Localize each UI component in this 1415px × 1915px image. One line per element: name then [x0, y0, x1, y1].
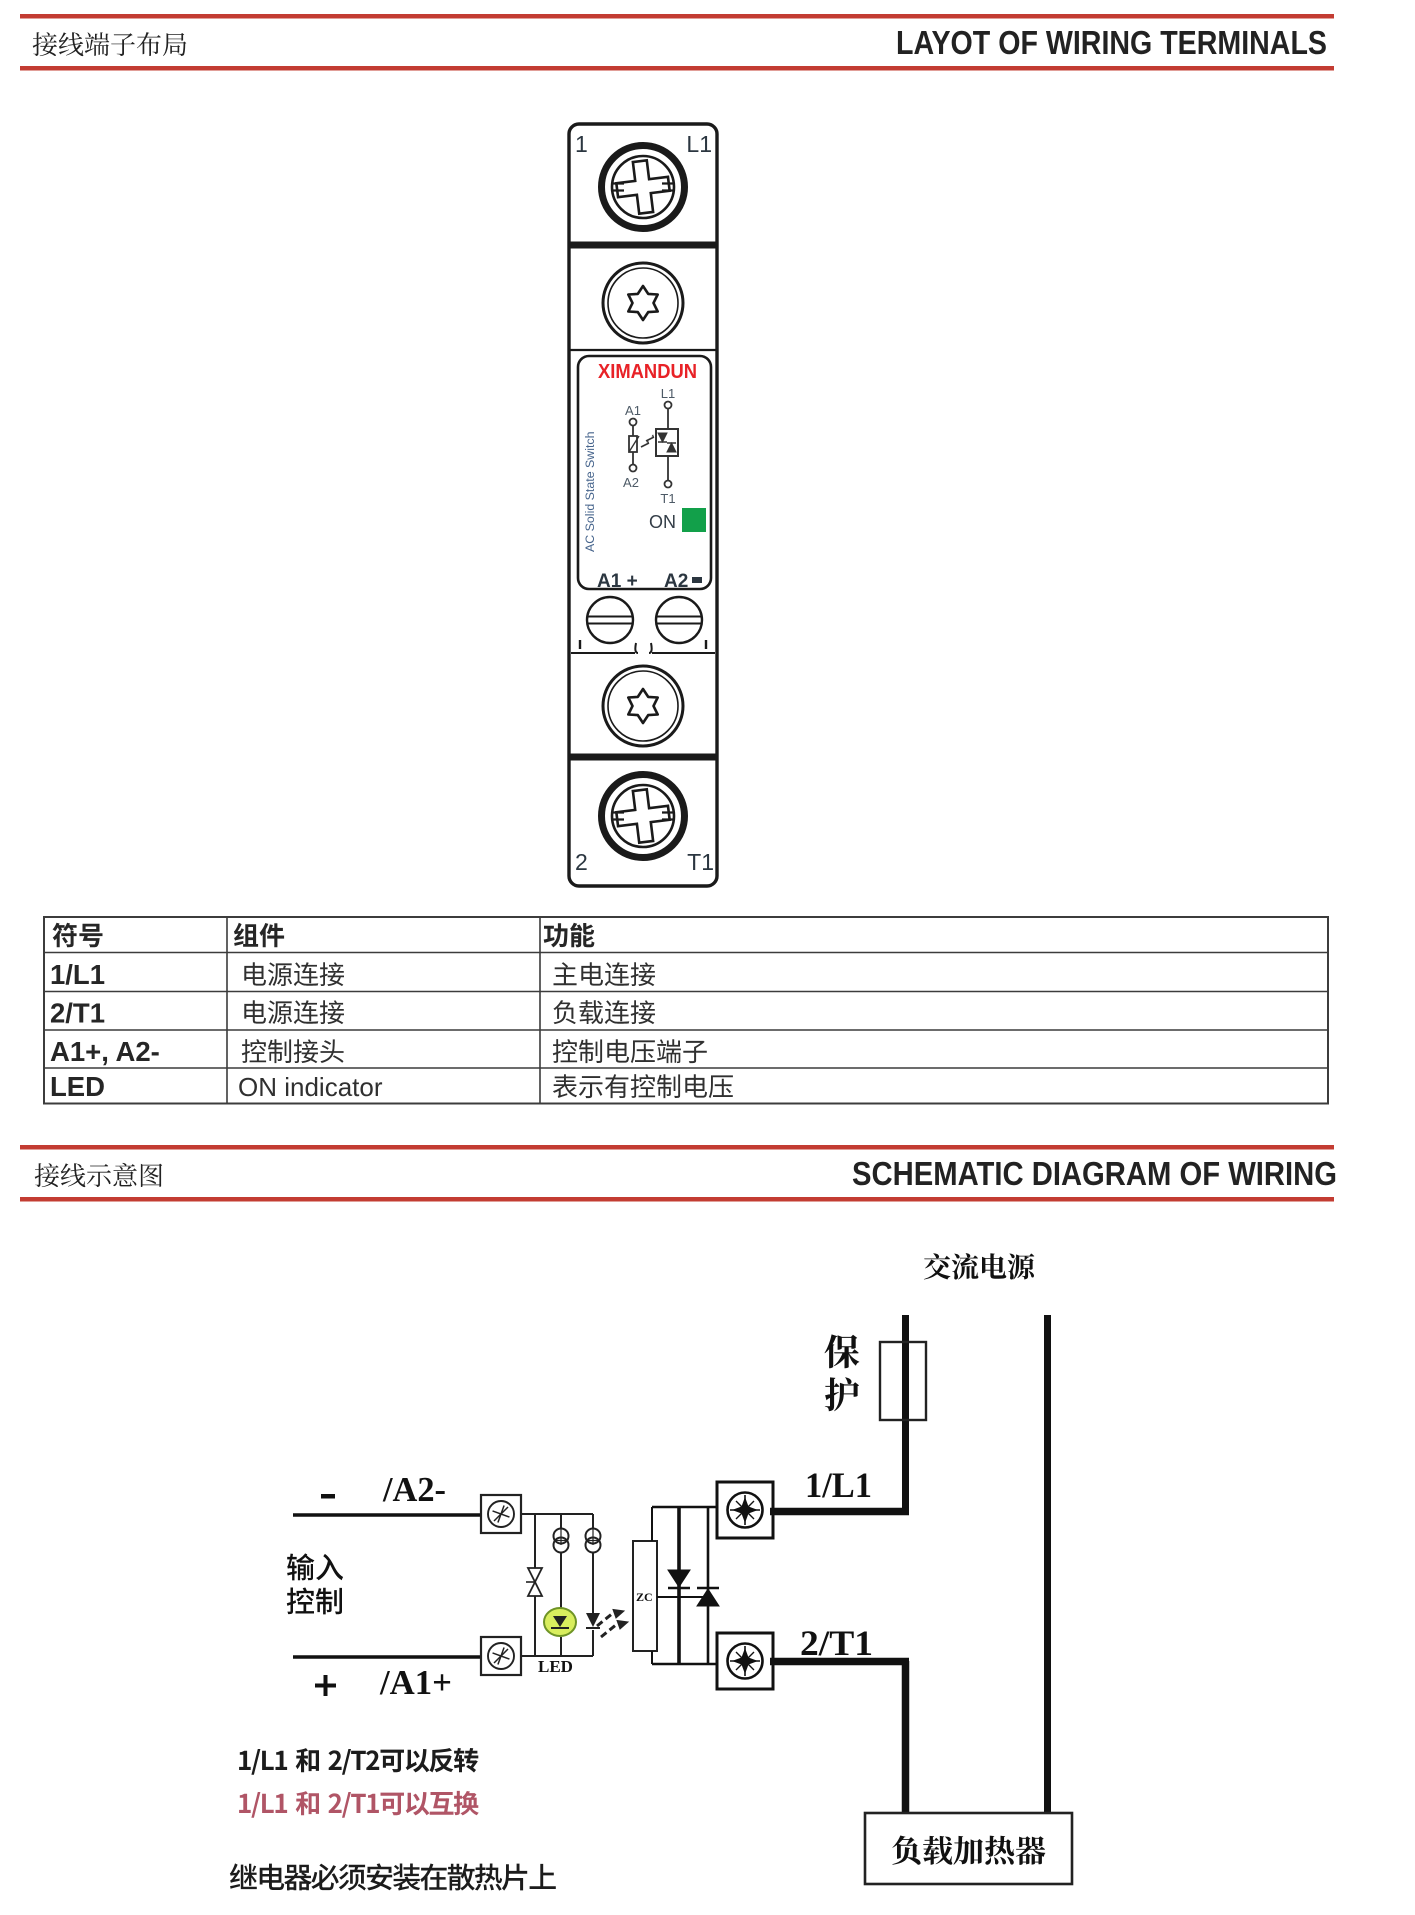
- svg-text:A1 +: A1 +: [597, 571, 638, 592]
- svg-text:A2: A2: [664, 571, 688, 592]
- svg-text:2/T1: 2/T1: [50, 998, 105, 1029]
- svg-text:ZC: ZC: [636, 1590, 653, 1604]
- svg-text:1: 1: [575, 131, 588, 157]
- svg-text:1/L1: 1/L1: [805, 1465, 872, 1505]
- svg-text:LED: LED: [50, 1071, 105, 1102]
- svg-text:2/T1: 2/T1: [800, 1623, 873, 1663]
- svg-text:/A2-: /A2-: [382, 1470, 446, 1509]
- svg-text:2: 2: [575, 849, 588, 875]
- svg-text:T1: T1: [687, 849, 714, 875]
- svg-text:1/L1: 1/L1: [50, 959, 105, 990]
- svg-text:L1: L1: [661, 386, 675, 401]
- svg-text:ON: ON: [649, 512, 676, 532]
- svg-text:SCHEMATIC DIAGRAM OF WIRING: SCHEMATIC DIAGRAM OF WIRING: [852, 1155, 1337, 1192]
- svg-text:T1: T1: [660, 491, 675, 506]
- svg-text:A1: A1: [625, 403, 641, 418]
- svg-text:A2: A2: [623, 475, 639, 490]
- svg-text:AC Solid State Switch: AC Solid State Switch: [583, 431, 597, 552]
- svg-text:LAYOT OF WIRING TERMINALS: LAYOT OF WIRING TERMINALS: [896, 24, 1327, 61]
- svg-text:L1: L1: [686, 131, 712, 157]
- svg-text:XIMANDUN: XIMANDUN: [598, 361, 697, 383]
- svg-text:LED: LED: [538, 1657, 573, 1676]
- svg-text:/A1+: /A1+: [379, 1663, 452, 1702]
- svg-text:ON indicator: ON indicator: [238, 1072, 383, 1102]
- svg-text:A1+, A2-: A1+, A2-: [50, 1036, 160, 1067]
